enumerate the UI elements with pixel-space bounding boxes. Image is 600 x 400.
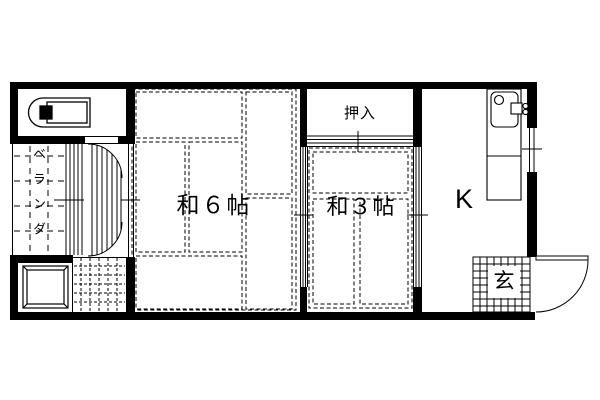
bathtub-icon (29, 98, 90, 127)
kitchen-sink-icon (487, 89, 528, 200)
room-label-closet: 押入 (310, 102, 410, 123)
double-door-swing-icon (88, 144, 122, 256)
room-label-japanese-6mat: 和６帖 (133, 186, 295, 220)
kitchen-window (522, 128, 542, 172)
bathroom-door-opening (85, 137, 121, 144)
tatami-3-mats (309, 148, 412, 308)
room-label-japanese-3mat: 和３帖 (303, 189, 419, 221)
veranda-sliding-window-icon (54, 144, 84, 255)
room-label-entrance: 玄 (488, 266, 520, 298)
utility-tile-floor (73, 257, 127, 312)
washer-pan-icon (23, 266, 68, 308)
entrance-door-swing-icon (536, 256, 588, 312)
floor-plan-drawing (0, 0, 600, 400)
floor-plan-canvas: 和６帖 和３帖 K 押入 玄 ベランダ (0, 0, 600, 400)
room-label-kitchen: K (444, 184, 484, 215)
fusuma-sliding-door-icon (307, 131, 413, 152)
room-label-veranda: ベランダ (29, 147, 48, 247)
